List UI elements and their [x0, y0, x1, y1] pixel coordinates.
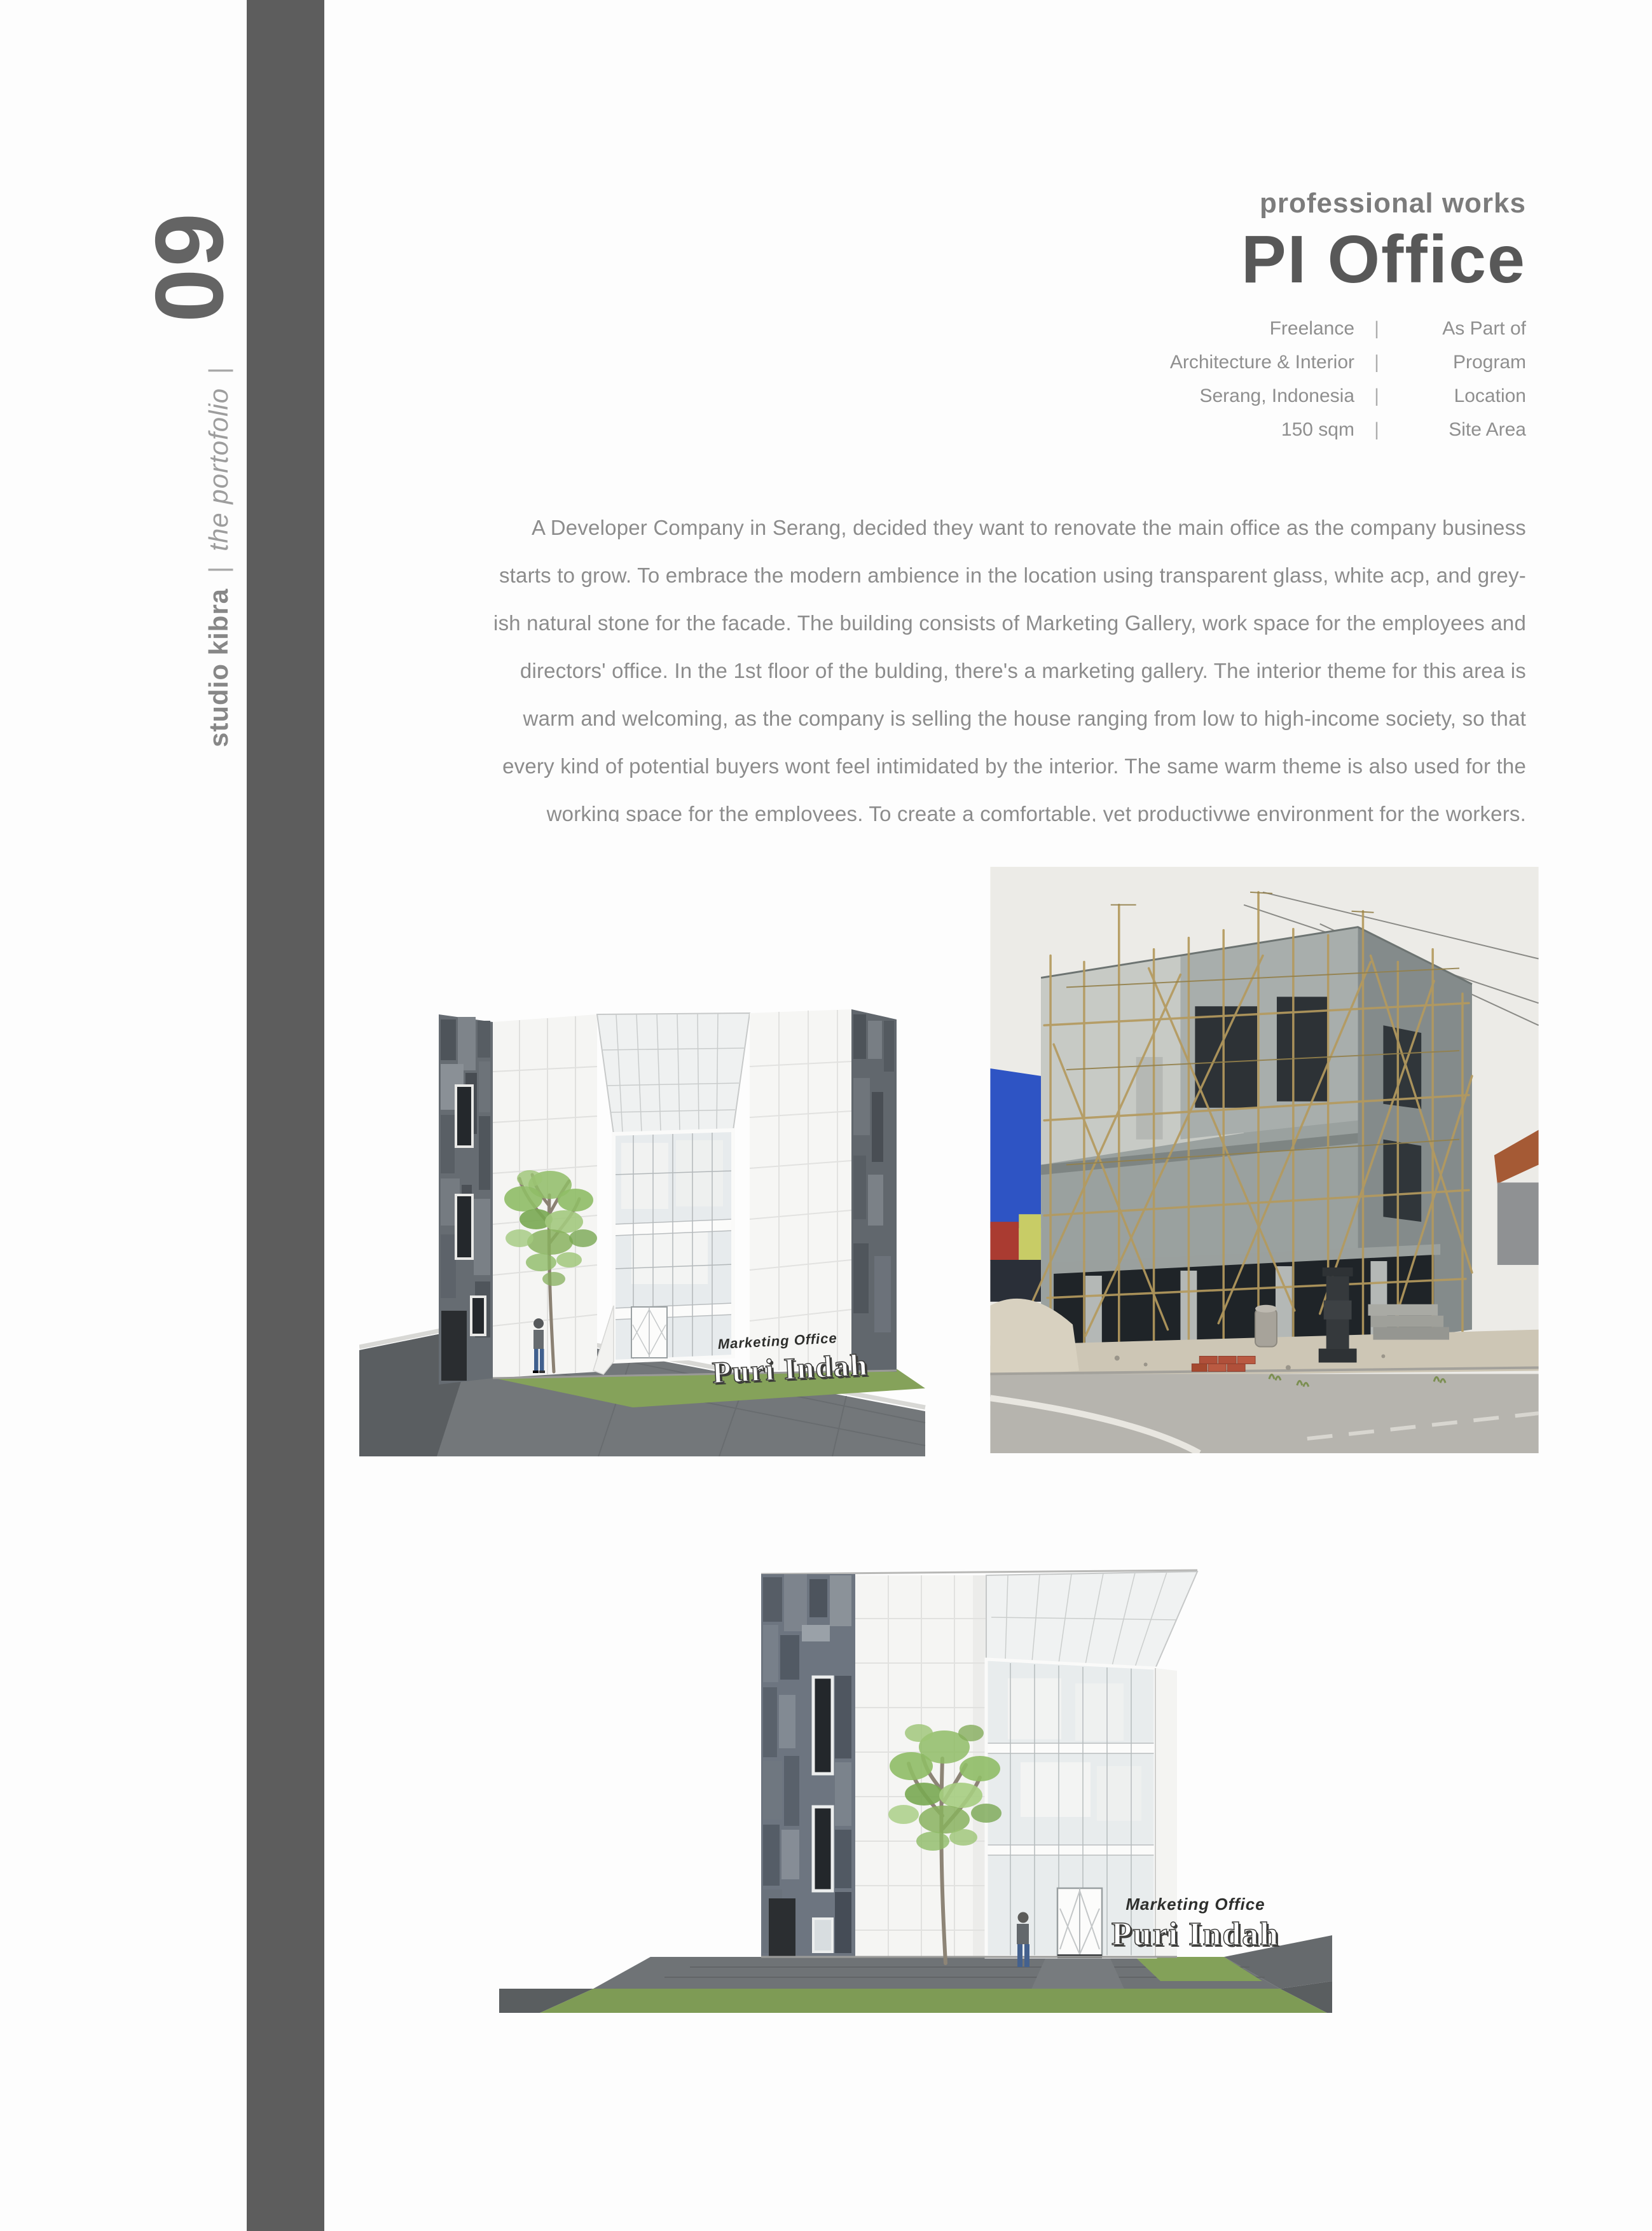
meta-separator: |: [1354, 385, 1399, 407]
portfolio-page: 09 studio kibra | the portofolio | profe…: [0, 0, 1652, 2231]
side-door: [441, 1311, 467, 1381]
meta-row: Freelance | As Part of: [763, 318, 1526, 352]
render-front-illustration: Marketing Office Puri Indah Puri Indah: [499, 1542, 1332, 2013]
sign-marketing-office: Marketing Office: [1125, 1895, 1265, 1914]
steps: [1368, 1304, 1449, 1340]
meta-value: 150 sqm: [1281, 419, 1354, 441]
portfolio-tagline: the portofolio: [203, 388, 233, 551]
construction-photo-figure: [990, 867, 1539, 1453]
meta-label: Location: [1399, 385, 1526, 407]
project-meta: Freelance | As Part of Architecture & In…: [763, 318, 1526, 453]
meta-value: Architecture & Interior: [1170, 352, 1354, 373]
sidebar-brand: studio kibra | the portofolio |: [203, 367, 234, 747]
sidebar-rail: [247, 0, 324, 2231]
meta-label: As Part of: [1399, 318, 1526, 340]
brand-divider-end: |: [203, 367, 233, 374]
render-front-figure: Marketing Office Puri Indah Puri Indah: [499, 1542, 1332, 2013]
meta-value: Freelance: [1270, 318, 1354, 340]
meta-separator: |: [1354, 352, 1399, 373]
entrance-door: [1057, 1888, 1102, 1958]
meta-label: Program: [1399, 352, 1526, 373]
meta-row: Architecture & Interior | Program: [763, 352, 1526, 385]
meta-row: 150 sqm | Site Area: [763, 419, 1526, 453]
meta-label: Site Area: [1399, 419, 1526, 441]
meta-separator: |: [1354, 318, 1399, 340]
description-line: directors' office. In the 1st floor of t…: [382, 647, 1526, 694]
description-line: ish natural stone for the facade. The bu…: [382, 599, 1526, 647]
tower-door: [769, 1898, 795, 1957]
description-line: working space for the employees. To crea…: [382, 790, 1526, 822]
barrel: [1255, 1305, 1277, 1347]
meta-value: Serang, Indonesia: [1199, 385, 1354, 407]
construction-photo-illustration: [990, 867, 1539, 1453]
page-number: 09: [141, 211, 238, 322]
render-perspective-figure: Marketing Office Puri Indah Puri Indah: [359, 925, 928, 1456]
meta-separator: |: [1354, 419, 1399, 441]
section-eyebrow: professional works: [763, 188, 1526, 219]
sign-puri-indah: Puri Indah: [1112, 1916, 1279, 1952]
building-sign: Marketing Office Puri Indah Puri Indah: [1112, 1895, 1281, 1954]
project-title: PI Office: [763, 224, 1526, 295]
canopy: [597, 1013, 750, 1134]
project-description: A Developer Company in Serang, decided t…: [382, 504, 1526, 822]
meta-row: Serang, Indonesia | Location: [763, 385, 1526, 419]
description-line: A Developer Company in Serang, decided t…: [382, 504, 1526, 551]
description-line: warm and welcoming, as the company is se…: [382, 694, 1526, 742]
studio-name: studio kibra: [203, 588, 233, 747]
render-perspective-illustration: Marketing Office Puri Indah Puri Indah: [359, 925, 928, 1456]
entrance-door: [631, 1307, 667, 1358]
description-line: every kind of potential buyers wont feel…: [382, 742, 1526, 790]
brand-divider: |: [203, 566, 233, 573]
description-line: starts to grow. To embrace the modern am…: [382, 551, 1526, 599]
lawn: [540, 1989, 1327, 2013]
blue-building: [990, 1068, 1041, 1302]
project-header: professional works PI Office Freelance |…: [763, 188, 1526, 453]
